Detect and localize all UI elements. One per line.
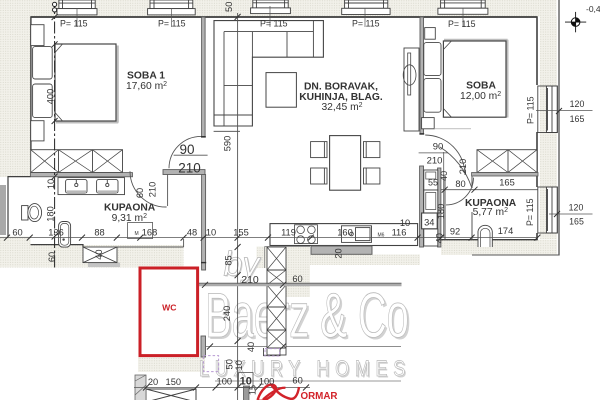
svg-text:100: 100 bbox=[217, 377, 233, 387]
svg-text:174: 174 bbox=[498, 226, 514, 236]
svg-text:SOBA: SOBA bbox=[466, 81, 496, 92]
svg-text:ORMAR: ORMAR bbox=[300, 391, 337, 400]
svg-text:M6: M6 bbox=[378, 232, 385, 238]
svg-text:85: 85 bbox=[223, 255, 233, 265]
svg-text:210: 210 bbox=[178, 161, 201, 176]
svg-text:40: 40 bbox=[435, 233, 445, 243]
svg-text:120: 120 bbox=[569, 203, 584, 213]
svg-text:M: M bbox=[135, 231, 139, 237]
svg-text:P= 115: P= 115 bbox=[352, 19, 380, 29]
svg-text:400: 400 bbox=[46, 89, 56, 105]
svg-text:KUPAONA: KUPAONA bbox=[104, 202, 156, 213]
svg-text:P= 115: P= 115 bbox=[525, 198, 535, 226]
svg-text:P= 115: P= 115 bbox=[60, 19, 88, 29]
svg-text:40: 40 bbox=[246, 342, 256, 352]
svg-text:P= 115: P= 115 bbox=[260, 19, 288, 29]
svg-text:P= 115: P= 115 bbox=[448, 19, 476, 29]
svg-text:60: 60 bbox=[47, 252, 57, 262]
svg-text:34: 34 bbox=[424, 218, 434, 228]
svg-text:210: 210 bbox=[241, 274, 259, 286]
svg-text:Baerz & Co: Baerz & Co bbox=[205, 281, 409, 351]
svg-text:50: 50 bbox=[224, 2, 234, 12]
svg-text:100: 100 bbox=[259, 377, 275, 387]
svg-text:165: 165 bbox=[570, 114, 585, 124]
svg-text:40: 40 bbox=[94, 249, 104, 259]
svg-text:5,77 m2: 5,77 m2 bbox=[473, 207, 508, 218]
svg-text:32,45 m2: 32,45 m2 bbox=[321, 102, 362, 113]
svg-text:20: 20 bbox=[148, 377, 158, 387]
svg-text:55: 55 bbox=[428, 178, 438, 188]
svg-text:WC: WC bbox=[162, 303, 176, 313]
svg-text:20: 20 bbox=[334, 248, 344, 258]
svg-text:9,31 m2: 9,31 m2 bbox=[112, 213, 147, 224]
svg-text:60: 60 bbox=[12, 227, 22, 237]
svg-text:92: 92 bbox=[450, 227, 460, 237]
svg-text:10: 10 bbox=[400, 218, 410, 228]
svg-text:10: 10 bbox=[46, 179, 56, 189]
svg-text:240: 240 bbox=[222, 306, 232, 322]
svg-text:80: 80 bbox=[455, 179, 465, 189]
svg-text:17,60 m2: 17,60 m2 bbox=[126, 81, 167, 92]
svg-text:160: 160 bbox=[337, 227, 353, 237]
svg-text:165: 165 bbox=[569, 216, 584, 226]
svg-text:180: 180 bbox=[436, 204, 446, 220]
svg-text:590: 590 bbox=[223, 136, 233, 152]
svg-text:10: 10 bbox=[240, 376, 252, 388]
svg-text:136: 136 bbox=[48, 227, 64, 237]
svg-text:90: 90 bbox=[433, 141, 444, 152]
svg-text:116: 116 bbox=[392, 227, 407, 237]
svg-text:40: 40 bbox=[439, 171, 449, 181]
svg-text:155: 155 bbox=[233, 227, 249, 237]
svg-text:10: 10 bbox=[234, 360, 244, 370]
svg-text:150: 150 bbox=[166, 377, 182, 387]
svg-text:90: 90 bbox=[179, 142, 194, 157]
svg-text:165: 165 bbox=[499, 178, 515, 188]
svg-text:50: 50 bbox=[224, 359, 234, 369]
svg-text:48: 48 bbox=[187, 227, 197, 237]
svg-text:88: 88 bbox=[94, 227, 104, 237]
svg-text:60: 60 bbox=[292, 274, 302, 284]
svg-text:P= 115: P= 115 bbox=[158, 19, 186, 29]
svg-text:210: 210 bbox=[148, 182, 158, 198]
svg-text:180: 180 bbox=[46, 206, 56, 222]
svg-text:SOBA 1: SOBA 1 bbox=[127, 70, 165, 81]
svg-text:-0,4: -0,4 bbox=[586, 4, 600, 14]
svg-text:210: 210 bbox=[427, 155, 443, 166]
svg-text:120: 120 bbox=[570, 99, 585, 109]
svg-text:P= 115: P= 115 bbox=[526, 96, 536, 124]
svg-text:10: 10 bbox=[206, 227, 216, 237]
svg-text:168: 168 bbox=[142, 227, 158, 237]
svg-text:12,00 m2: 12,00 m2 bbox=[460, 91, 501, 102]
svg-text:60: 60 bbox=[135, 188, 145, 198]
svg-text:60: 60 bbox=[292, 376, 302, 386]
svg-text:119: 119 bbox=[281, 227, 296, 237]
svg-text:210: 210 bbox=[458, 159, 468, 175]
